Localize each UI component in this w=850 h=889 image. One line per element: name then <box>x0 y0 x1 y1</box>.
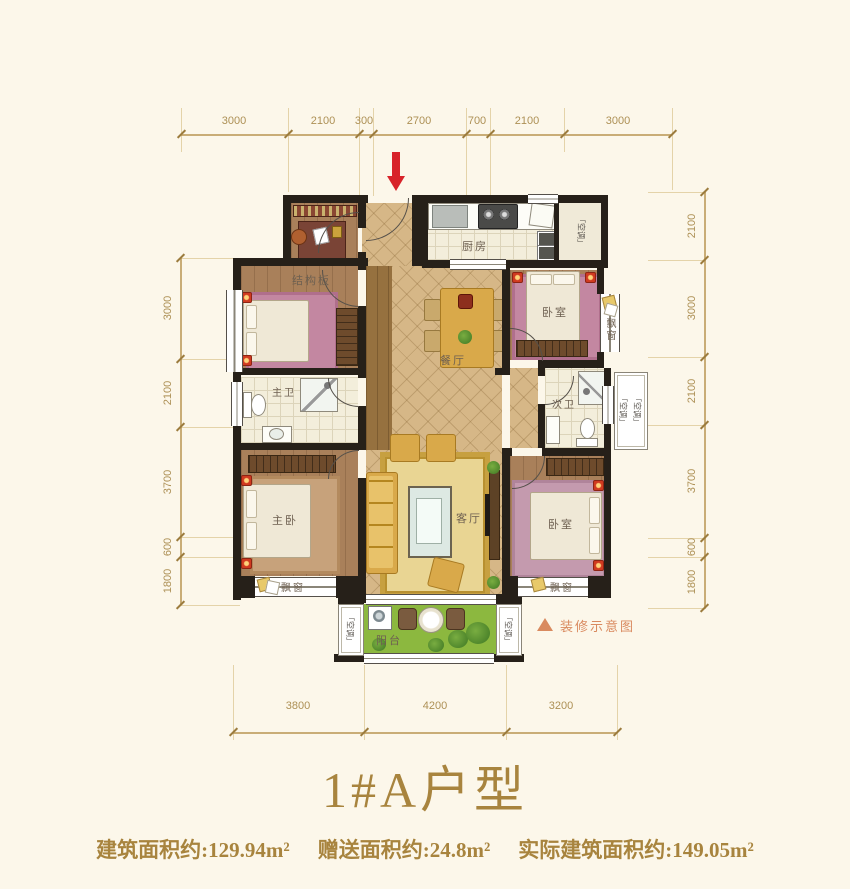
guide-line <box>648 192 706 193</box>
wall <box>506 260 608 268</box>
dim-label: 2100 <box>162 381 174 405</box>
sofa-cushions <box>369 476 393 568</box>
ac-label: 「空调」 <box>618 394 629 426</box>
pillow <box>246 332 257 356</box>
dim-label: 3200 <box>549 700 573 712</box>
guide-line <box>288 108 289 192</box>
entry-arrow-head <box>387 176 405 191</box>
ac-label: 「空调」 <box>345 613 356 645</box>
wall <box>502 268 510 360</box>
shower-head <box>583 388 590 395</box>
pillow <box>246 522 257 550</box>
stove-burner <box>499 209 510 220</box>
guide-line <box>648 357 706 358</box>
wall <box>358 478 366 576</box>
dimension-line-bottom <box>233 732 617 734</box>
balcony-plant <box>466 622 490 644</box>
balcony-slider <box>366 594 496 605</box>
bay-window-label: 飘窗 <box>281 579 305 594</box>
wall <box>495 368 510 375</box>
toilet-tank <box>576 438 598 447</box>
dim-label: 300 <box>355 115 373 127</box>
wall <box>358 195 366 228</box>
guide-line <box>648 425 706 426</box>
dim-label: 2100 <box>686 379 698 403</box>
guide-line <box>490 108 491 198</box>
balcony-plant <box>428 638 444 652</box>
balcony-rail <box>364 653 494 664</box>
dim-label: 1800 <box>162 569 174 593</box>
wall <box>233 443 366 450</box>
dim-label: 3000 <box>606 115 630 127</box>
room-label-bedroom3: 卧室 <box>548 516 574 532</box>
entry-arrow-shaft <box>392 152 400 178</box>
pillow <box>553 274 575 285</box>
dim-label: 2100 <box>515 115 539 127</box>
legend-label: 装修示意图 <box>560 616 635 635</box>
wall <box>601 203 608 260</box>
corridor-floor <box>366 266 392 450</box>
sink-bowl <box>269 428 284 440</box>
guide-line <box>181 108 182 152</box>
legend-triangle-icon <box>537 618 553 631</box>
wall <box>496 596 522 604</box>
guide-line <box>180 258 240 259</box>
balcony-chair <box>398 608 417 630</box>
dim-label: 1800 <box>686 570 698 594</box>
bedside-lamp <box>241 558 252 569</box>
balcony-table <box>418 607 444 633</box>
room-label-master-bedroom: 主卧 <box>272 512 298 528</box>
dim-label: 4200 <box>423 700 447 712</box>
dim-label: 3000 <box>222 115 246 127</box>
dim-label: 600 <box>162 538 174 556</box>
guide-line <box>648 557 706 558</box>
dim-label: 3700 <box>686 469 698 493</box>
bay-window-label: 飘窗 <box>550 579 574 594</box>
wall <box>554 203 559 260</box>
wall <box>502 456 510 576</box>
wall <box>422 260 450 268</box>
dim-label: 3000 <box>686 296 698 320</box>
room-label-dining: 餐厅 <box>440 352 466 368</box>
kitchen-slider <box>450 259 506 270</box>
dim-label: 3800 <box>286 700 310 712</box>
kitchen-sink <box>432 205 468 228</box>
suite-hall-floor <box>510 368 538 448</box>
master-wardrobe <box>248 455 336 473</box>
table-ornament <box>458 294 473 309</box>
room-label-master-bath: 主卫 <box>272 384 296 399</box>
armchair <box>426 434 456 462</box>
tv <box>485 494 490 536</box>
pillow <box>589 527 600 554</box>
bedroom3-wardrobe <box>546 458 604 476</box>
guide-line <box>648 260 706 261</box>
dim-label: 3700 <box>162 470 174 494</box>
bedside-lamp <box>241 475 252 486</box>
living-plant <box>487 461 500 474</box>
ac-label: 「空调」 <box>632 394 643 426</box>
wall <box>538 368 545 376</box>
wall <box>502 360 510 368</box>
room-label-kitchen: 厨房 <box>462 238 488 254</box>
guide-line <box>180 605 240 606</box>
floor-plan-page: { "title": "1#A户型", "area_line": { "buil… <box>0 0 850 889</box>
area-bonus: 赠送面积约:24.8m² <box>318 834 491 864</box>
wall <box>604 456 611 576</box>
dim-label: 2100 <box>311 115 335 127</box>
second-bath-window <box>602 386 614 424</box>
wall <box>412 195 608 203</box>
dimension-line-right <box>704 192 706 608</box>
wall <box>502 448 512 456</box>
dim-label: 600 <box>686 538 698 556</box>
page-title: 1#A户型 <box>0 750 850 822</box>
dim-label: 2700 <box>407 115 431 127</box>
bay-window-label: 飘窗 <box>602 318 617 342</box>
bath-sink <box>546 416 560 444</box>
balcony-chair <box>446 608 465 630</box>
guide-line <box>180 557 240 558</box>
washer-drum <box>373 610 385 622</box>
pillow <box>530 274 552 285</box>
fridge <box>529 202 556 228</box>
dining-chair <box>424 330 441 352</box>
bay-decor <box>265 580 280 595</box>
ac-label: 「空调」 <box>576 215 587 247</box>
wall <box>283 195 368 203</box>
wall <box>233 258 368 266</box>
wall <box>538 404 545 448</box>
guide-line <box>180 427 240 428</box>
balcony-plant <box>448 630 468 648</box>
bedside-lamp <box>585 272 596 283</box>
room-label-second-bath: 次卫 <box>552 396 576 411</box>
pillow <box>246 490 257 518</box>
bay-window-bedroom1 <box>226 290 243 372</box>
dimension-line-top <box>181 134 672 136</box>
area-actual: 实际建筑面积约:149.05m² <box>518 834 754 864</box>
room-label-living: 客厅 <box>456 510 482 526</box>
bedroom1-wardrobe <box>336 308 358 366</box>
wall <box>412 195 428 266</box>
wall <box>538 360 604 368</box>
desk-chair <box>291 229 307 245</box>
bedside-lamp <box>593 480 604 491</box>
wall <box>233 368 366 375</box>
wall <box>588 576 611 598</box>
wall <box>542 448 611 456</box>
armchair <box>390 434 420 462</box>
bedside-lamp <box>512 272 523 283</box>
bedside-lamp <box>593 560 604 571</box>
wall <box>338 596 364 604</box>
toilet-bowl <box>580 418 595 439</box>
pillow <box>589 497 600 524</box>
room-label-balcony: 阳台 <box>376 632 402 648</box>
area-built: 建筑面积约:129.94m² <box>96 834 290 864</box>
pillow <box>246 305 257 329</box>
kitchen-window <box>528 194 558 204</box>
master-bath-window <box>231 382 243 426</box>
guide-line <box>564 108 565 152</box>
room-label-bedroom2: 卧室 <box>542 304 568 320</box>
guide-line <box>648 608 706 609</box>
toilet-bowl <box>251 394 266 416</box>
table-plant <box>458 330 472 344</box>
dining-chair <box>424 299 441 321</box>
stove-burner <box>483 209 494 220</box>
guide-line <box>672 108 673 190</box>
tv-cabinet <box>489 470 500 560</box>
wall <box>283 195 291 266</box>
room-label-structural-slab: 结构板 <box>292 272 331 288</box>
dim-label: 700 <box>468 115 486 127</box>
dim-label: 2100 <box>686 214 698 238</box>
area-summary: 建筑面积约:129.94m² 赠送面积约:24.8m² 实际建筑面积约:149.… <box>0 834 850 864</box>
living-plant <box>487 576 500 589</box>
dim-tick <box>700 603 709 612</box>
dim-label: 3000 <box>162 296 174 320</box>
ac-label: 「空调」 <box>503 613 514 645</box>
wall <box>597 268 604 294</box>
guide-line <box>180 537 240 538</box>
coffee-table-glass <box>416 498 442 544</box>
wall <box>233 576 255 598</box>
